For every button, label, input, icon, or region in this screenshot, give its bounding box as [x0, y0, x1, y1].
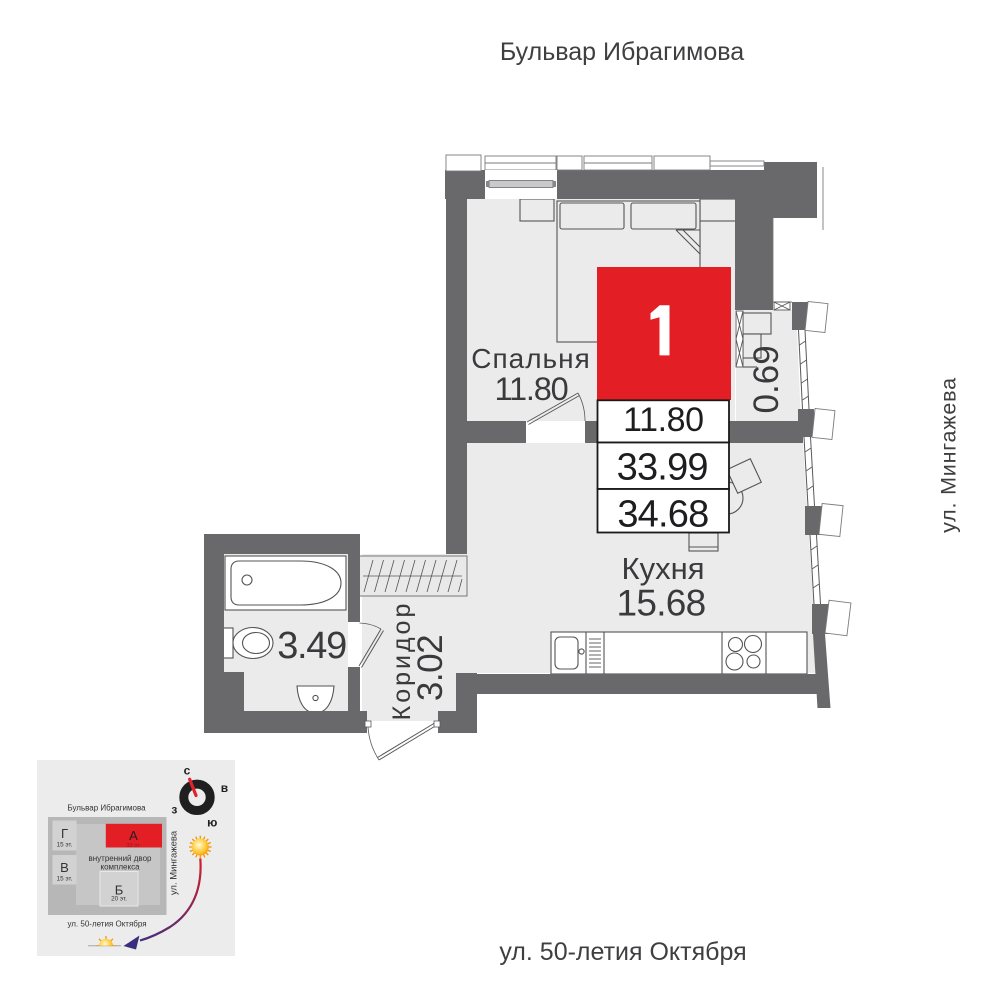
- svg-text:с: с: [184, 764, 191, 778]
- svg-text:Спальня: Спальня: [471, 343, 591, 374]
- svg-text:з: з: [171, 803, 177, 817]
- svg-text:15.68: 15.68: [616, 583, 705, 624]
- svg-text:15 эт.: 15 эт.: [57, 842, 73, 849]
- svg-text:0.69: 0.69: [747, 345, 786, 413]
- svg-text:34.68: 34.68: [617, 494, 708, 536]
- svg-text:ул. Мингажева: ул. Мингажева: [169, 830, 180, 895]
- svg-text:комплекса: комплекса: [100, 863, 140, 872]
- svg-text:Г: Г: [61, 826, 68, 841]
- svg-text:33.99: 33.99: [617, 447, 708, 489]
- svg-text:ю: ю: [207, 816, 217, 830]
- svg-text:20 эт.: 20 эт.: [111, 896, 127, 903]
- svg-text:В: В: [60, 860, 69, 875]
- svg-text:3.02: 3.02: [411, 635, 450, 701]
- svg-text:3.49: 3.49: [277, 625, 346, 667]
- svg-text:ул. 50-летия Октября: ул. 50-летия Октября: [499, 938, 746, 966]
- svg-text:Бульвар Ибрагимова: Бульвар Ибрагимова: [500, 38, 744, 66]
- svg-text:33 эт.: 33 эт.: [126, 843, 141, 849]
- svg-text:ул. 50-летия Октября: ул. 50-летия Октября: [67, 920, 146, 929]
- svg-text:ул. Мингажева: ул. Мингажева: [937, 377, 961, 533]
- svg-text:11.80: 11.80: [495, 371, 568, 407]
- svg-text:15 эт.: 15 эт.: [57, 876, 73, 883]
- svg-text:Бульвар Ибрагимова: Бульвар Ибрагимова: [67, 804, 146, 813]
- svg-text:А: А: [129, 828, 138, 843]
- svg-text:11.80: 11.80: [623, 401, 704, 439]
- svg-text:в: в: [221, 781, 228, 795]
- svg-text:Кухня: Кухня: [622, 551, 705, 586]
